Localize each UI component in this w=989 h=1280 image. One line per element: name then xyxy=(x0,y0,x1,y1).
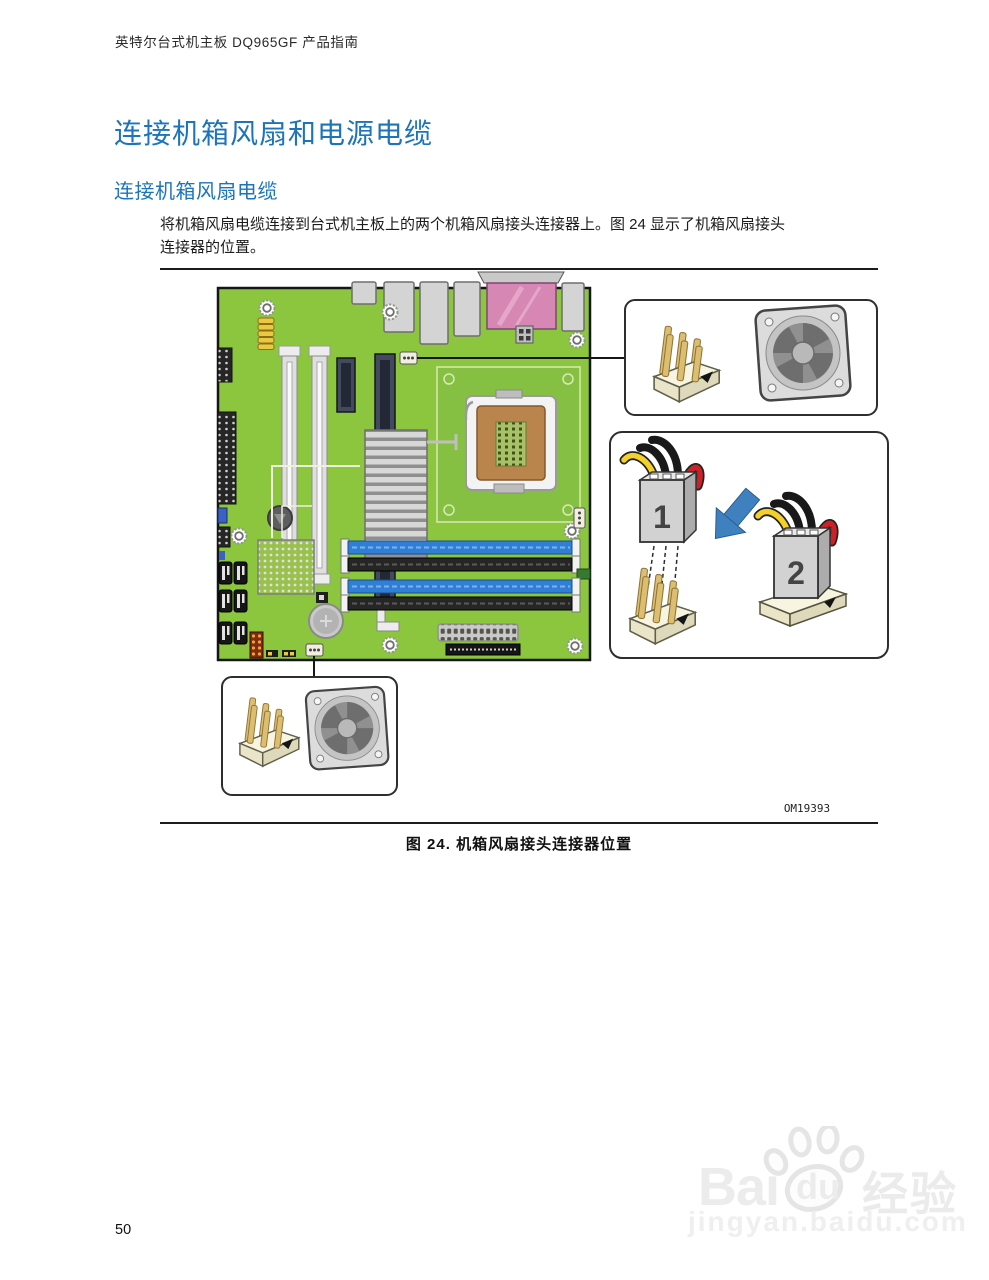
subsection-title: 连接机箱风扇电缆 xyxy=(114,175,278,204)
motherboard xyxy=(218,272,625,677)
parallel-port-connector xyxy=(478,272,564,283)
chassis-fan-connector-1 xyxy=(400,352,417,364)
figure-24-diagram: 1 2 xyxy=(160,270,890,822)
io-4hole-block xyxy=(516,326,533,343)
plug-1-label: 1 xyxy=(653,499,671,535)
body-line-2: 连接器的位置。 xyxy=(160,236,880,259)
cpu-socket-zone xyxy=(437,367,580,522)
dimm-slot-2 xyxy=(341,556,580,573)
body-line-1: 将机箱风扇电缆连接到台式机主板上的两个机箱风扇接头连接器上。图 24 显示了机箱… xyxy=(160,213,880,236)
parallel-port-pink xyxy=(487,283,556,329)
chipset xyxy=(258,540,314,594)
page-number: 50 xyxy=(115,1222,131,1238)
chassis-fan-connector-2 xyxy=(306,644,323,656)
figure-bottom-rule xyxy=(160,822,878,824)
figure-caption: 图 24. 机箱风扇接头连接器位置 xyxy=(160,833,878,854)
plug-2-label: 2 xyxy=(787,555,805,591)
figure-24: 1 2 xyxy=(160,270,890,822)
page-header: 英特尔台式机主板 DQ965GF 产品指南 xyxy=(115,31,359,51)
document-page: 英特尔台式机主板 DQ965GF 产品指南 连接机箱风扇和电源电缆 连接机箱风扇… xyxy=(0,0,989,1280)
atx-power-connector xyxy=(438,624,518,641)
small-component xyxy=(316,592,328,603)
battery xyxy=(309,604,343,638)
fan-icon-2 xyxy=(305,686,389,770)
pcie-x1-slot xyxy=(337,358,355,412)
inset-fan-connector-bottom xyxy=(222,677,397,795)
watermark-url: jingyan.baidu.com xyxy=(688,1206,968,1238)
fan-icon xyxy=(755,305,851,401)
inset-fan-plug-install: 1 2 xyxy=(610,432,888,658)
section-title: 连接机箱风扇和电源电缆 xyxy=(114,112,433,152)
jumper-block xyxy=(258,318,274,350)
figure-code: OM19393 xyxy=(752,802,862,815)
inset-fan-connector-top xyxy=(625,300,877,415)
cpu-socket xyxy=(466,390,556,493)
body-paragraph: 将机箱风扇电缆连接到台式机主板上的两个机箱风扇接头连接器上。图 24 显示了机箱… xyxy=(160,213,880,259)
dimm-slot-1 xyxy=(341,539,580,556)
dimm-slot-3 xyxy=(341,578,580,595)
io-header-strip xyxy=(446,644,520,655)
dimm-slot-4 xyxy=(341,595,580,612)
right-edge-fan-connector xyxy=(574,508,585,528)
watermark-du-text: du xyxy=(796,1166,840,1208)
